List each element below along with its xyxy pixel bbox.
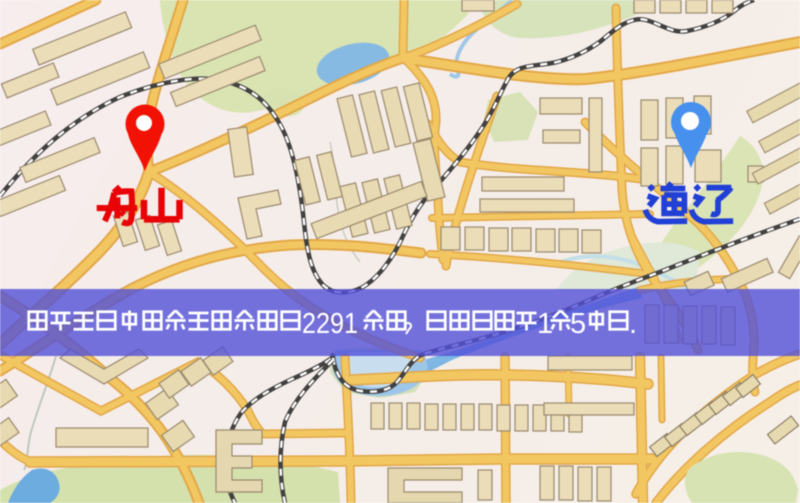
svg-text:5: 5 — [570, 308, 586, 340]
svg-text:2291: 2291 — [302, 308, 358, 340]
svg-text:.: . — [629, 308, 637, 340]
svg-text:1: 1 — [537, 308, 553, 340]
